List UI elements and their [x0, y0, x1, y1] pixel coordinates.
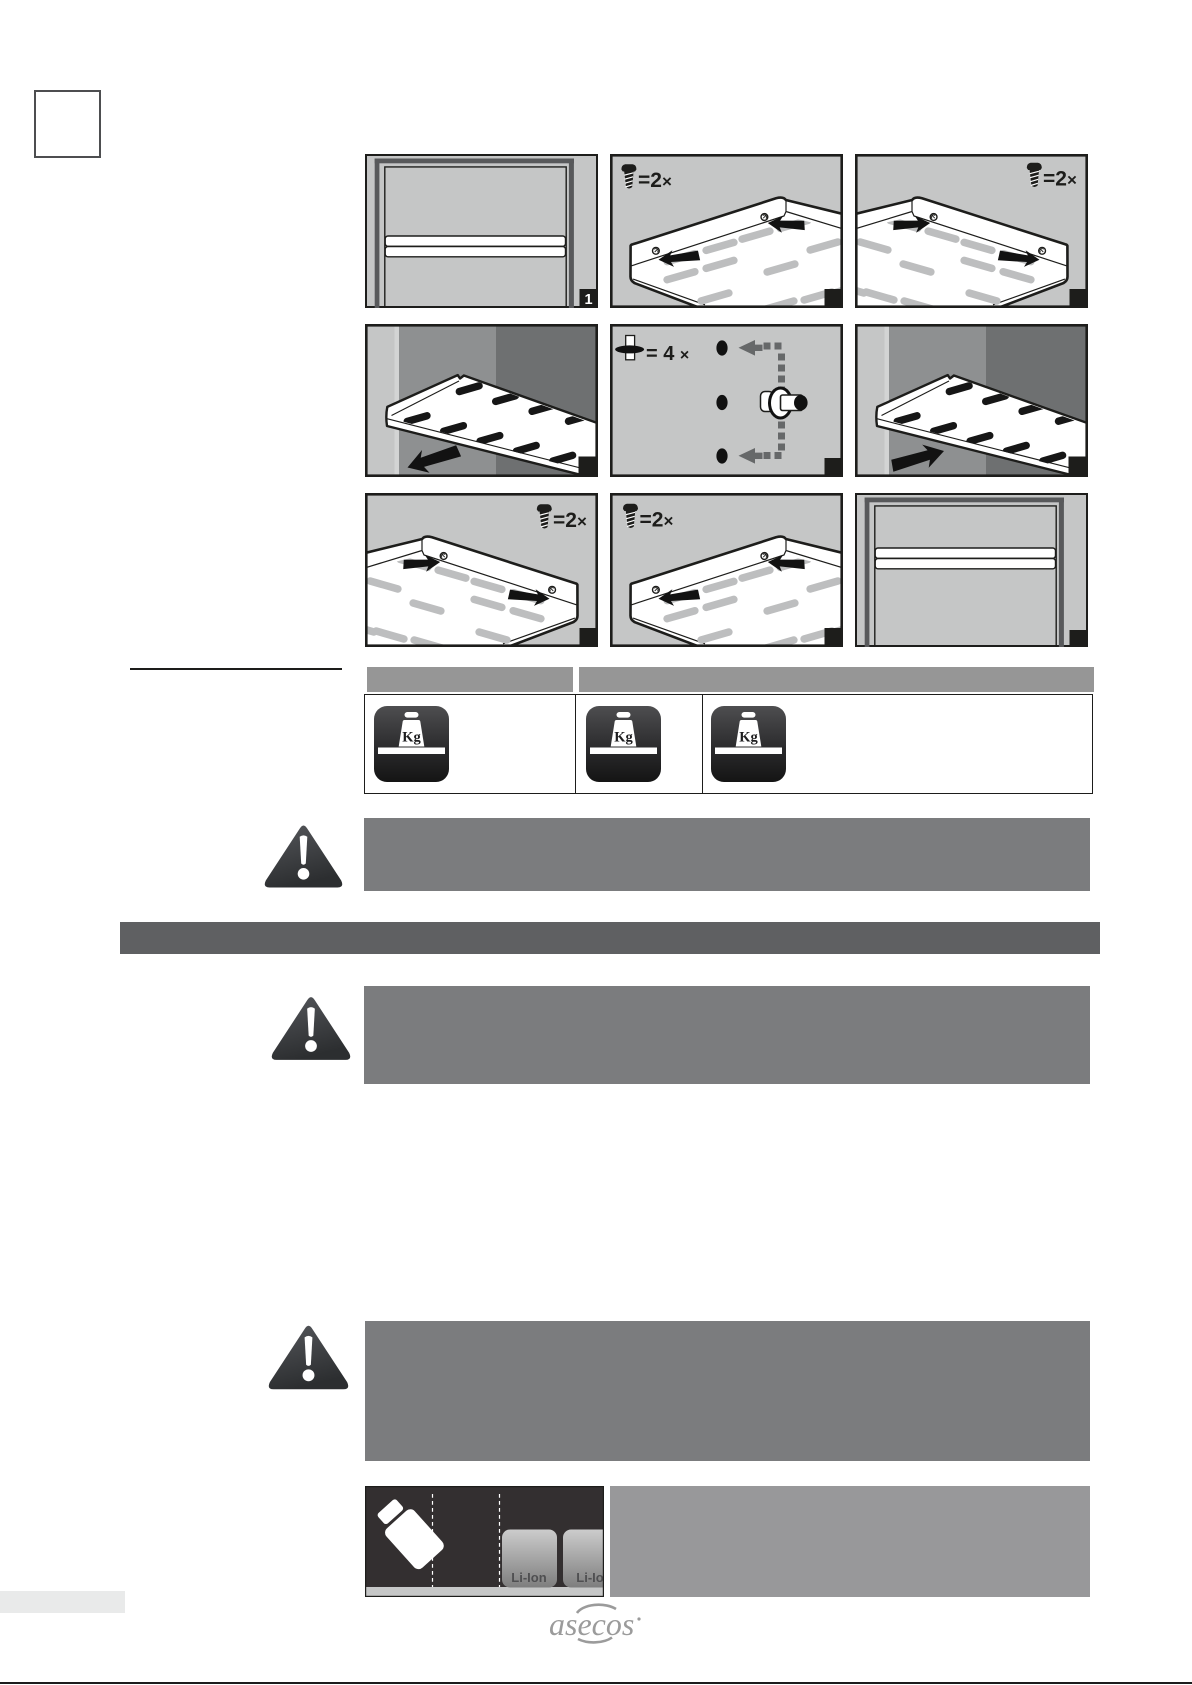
- svg-text:= 4 ×: = 4 ×: [646, 343, 689, 365]
- svg-text:=2×: =2×: [1043, 168, 1077, 191]
- svg-text:asecos: asecos: [549, 1606, 634, 1642]
- svg-text:=2×: =2×: [640, 509, 674, 532]
- svg-text:=2×: =2×: [638, 169, 672, 192]
- svg-text:Li-Ion: Li-Ion: [511, 1570, 546, 1585]
- svg-text:=2×: =2×: [553, 509, 587, 532]
- svg-text:Li-Io: Li-Io: [576, 1570, 603, 1585]
- svg-text:1: 1: [584, 292, 592, 308]
